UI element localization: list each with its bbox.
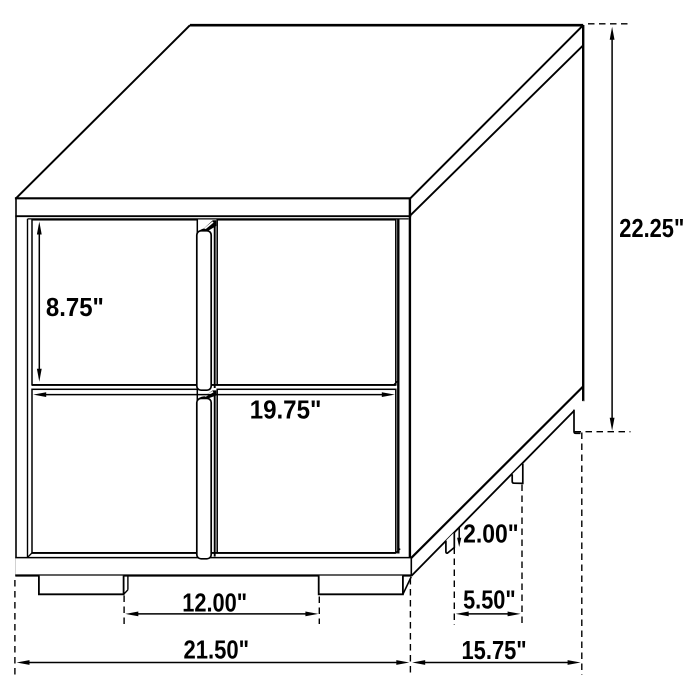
svg-text:5.50": 5.50" — [463, 587, 516, 615]
svg-text:8.75": 8.75" — [46, 294, 104, 322]
svg-text:22.25": 22.25" — [619, 215, 684, 243]
svg-text:19.75": 19.75" — [250, 397, 322, 425]
svg-text:2.00": 2.00" — [463, 521, 518, 549]
svg-text:15.75": 15.75" — [462, 637, 527, 665]
svg-text:12.00": 12.00" — [182, 589, 247, 617]
svg-text:21.50": 21.50" — [184, 637, 250, 665]
